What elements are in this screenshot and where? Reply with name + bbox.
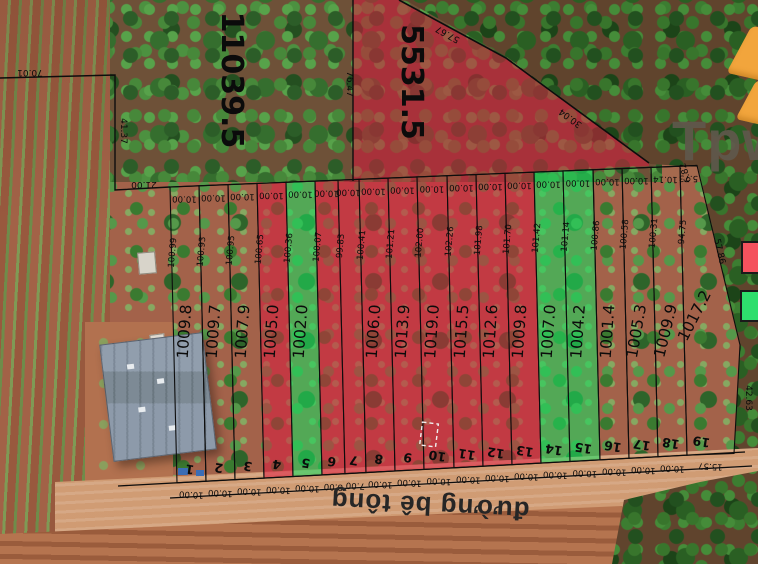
plot-bottom-width: 10.00 — [485, 472, 510, 483]
plot-bottom-width: 10.00 — [543, 469, 568, 480]
plot-top-width: 10.00 — [536, 178, 561, 188]
plot-side-length: 100.93 — [196, 236, 209, 267]
boundary-line — [399, 0, 649, 163]
aerial-survey-map: Tpw 1009.810.0010.001100.991009.710.0010… — [0, 0, 758, 564]
plot-top-width: 10.14 — [653, 174, 678, 184]
plot-top-width: 10.00 — [624, 175, 649, 185]
plot-side-length: 94.75 — [677, 219, 689, 244]
plot-bottom-width: 10.00 — [514, 470, 539, 481]
plot-side-length: 99.83 — [335, 233, 347, 258]
plot-number: 18 — [661, 435, 681, 453]
plot-bottom-width: 10.00 — [602, 465, 627, 476]
plot-top-width: 10.00 — [230, 191, 255, 201]
legend-green-swatch — [740, 290, 758, 322]
plot-area-label: 1004.2 — [567, 304, 589, 359]
plot-top-width: 10.00 — [566, 177, 591, 187]
plot-area-label: 1013.9 — [392, 304, 414, 359]
edge-dimension: 41.37 — [118, 118, 128, 144]
plot-bottom-width: 10.00 — [179, 488, 204, 499]
plot-area-label: 1006.0 — [363, 304, 385, 359]
edge-dimension: 30.04 — [557, 106, 584, 129]
plot-bottom-width: 10.00 — [426, 475, 451, 486]
plot-side-length: 100.58 — [619, 219, 632, 250]
plot-top-width: 10.00 — [420, 183, 445, 193]
plot-number: 15 — [574, 439, 594, 457]
edge-dimension: 21.00 — [131, 179, 157, 189]
plot-top-width: 10.00 — [507, 180, 532, 190]
edge-dimension: 76.47 — [344, 71, 354, 97]
plot-number: 17 — [632, 436, 652, 454]
plot-area-label: 1012.6 — [480, 304, 502, 359]
legend-red-swatch — [741, 241, 758, 274]
survey-overlay-svg: 1009.810.0010.001100.991009.710.0010.002… — [0, 0, 758, 564]
plot-area-label: 1017.2 — [674, 287, 715, 344]
plot-top-width: 10.00 — [259, 190, 284, 200]
plot-area-label: 1007.9 — [232, 304, 254, 359]
plot-number: 11 — [457, 446, 477, 464]
plot-area-label: 1015.5 — [451, 304, 473, 359]
plot-bottom-width: 10.00 — [572, 467, 597, 478]
plot-bottom-width: 10.00 — [266, 484, 291, 495]
plot-side-length: 100.31 — [648, 218, 661, 249]
plot-side-length: 100.95 — [225, 235, 238, 266]
plot-area-label: 1001.4 — [597, 304, 619, 359]
plot-bottom-width: 10.00 — [237, 485, 262, 496]
plot-top-width: 10.00 — [478, 181, 503, 191]
plot-area-label: 1009.8 — [174, 304, 196, 359]
plot-number: 14 — [544, 441, 564, 459]
plot-top-width: 10.00 — [361, 185, 386, 195]
plot-area-label: 1005.3 — [623, 303, 650, 360]
plot-number: 1 — [184, 461, 195, 477]
plot-top-width: 10.00 — [595, 176, 620, 186]
plot-side-length: 100.86 — [590, 220, 603, 251]
plot-top-width: 10.00 — [201, 192, 226, 202]
edge-dimension: 70.01 — [17, 67, 43, 77]
plot-number: 2 — [213, 460, 224, 476]
plot-bottom-width: 10.00 — [456, 473, 481, 484]
plot-bottom-width: 10.00 — [295, 482, 320, 493]
plot-number: 16 — [603, 438, 623, 456]
plot-side-length: 100.99 — [167, 237, 180, 268]
plot-area-label: 1009.7 — [203, 304, 225, 359]
plot-bottom-width: 15.57 — [698, 460, 723, 471]
plot-top-width: 10.00 — [336, 187, 361, 197]
plot-number: 12 — [486, 444, 506, 462]
plot-number: 10 — [427, 447, 447, 465]
plot-top-width: 10.00 — [172, 193, 197, 203]
plot-area-label: 1005.0 — [261, 304, 283, 359]
boundary-line — [0, 75, 170, 190]
edge-dimension: 57.86 — [711, 238, 727, 266]
plot-top-width: 10.00 — [390, 184, 415, 194]
plot-number: 19 — [692, 433, 712, 451]
edge-dimension: 42.63 — [743, 385, 753, 411]
plot-bottom-width: 10.00 — [208, 487, 233, 498]
plot-bottom-width: 10.00 — [631, 464, 656, 475]
plot-area-label: 1009.8 — [509, 304, 531, 359]
plot-area-label: 1007.0 — [538, 304, 560, 359]
plot-bottom-width: 10.00 — [397, 477, 422, 488]
plot-area-label: 1002.0 — [290, 304, 312, 359]
big-plot-area-label: 5531.5 — [394, 24, 429, 140]
plot-area-label: 1019.0 — [421, 304, 443, 359]
plot-number: 3 — [242, 458, 253, 474]
plot-bottom-width: 10.00 — [660, 462, 685, 473]
plot-top-width: 10.00 — [449, 182, 474, 192]
big-plot-area-label: 11039.5 — [214, 12, 249, 149]
plot-number: 13 — [515, 443, 535, 461]
plot-top-width: 10.00 — [314, 187, 339, 197]
plot-top-width: 10.00 — [288, 188, 313, 198]
